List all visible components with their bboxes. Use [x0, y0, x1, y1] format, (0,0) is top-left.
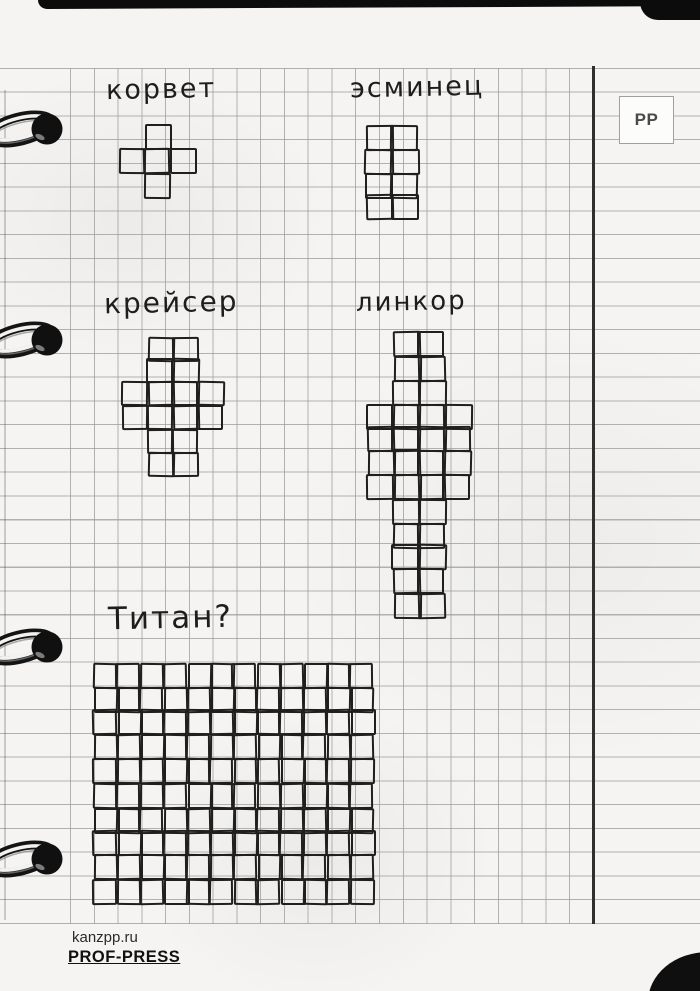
ship-cell [324, 758, 350, 784]
ship-cell [324, 879, 350, 905]
ship-cell [145, 124, 172, 150]
ship-cell [418, 355, 446, 381]
margin-rule-line [592, 66, 595, 924]
ship-cell [171, 381, 198, 406]
binder-ring-graphic [0, 616, 72, 676]
ship-cell [443, 425, 471, 451]
ship-cell [392, 380, 420, 406]
ship-cell [391, 544, 419, 570]
ship-label-kreyser: крейсер [104, 285, 239, 321]
ship-cell [198, 381, 226, 407]
ship-cell [418, 544, 446, 570]
ship-cell [390, 125, 418, 151]
notebook-page: PP корветэсминецкрейсерлинкорТитан? kanz… [0, 0, 700, 991]
notebook-top-edge-shadow [38, 0, 700, 9]
ship-cell [162, 662, 188, 689]
binder-ring-icon [0, 828, 72, 888]
ship-label-linkor: линкор [356, 286, 467, 318]
ship-cell [92, 829, 118, 856]
ship-cell [392, 149, 420, 175]
footer-brand: PROF-PRESS [68, 948, 180, 967]
ship-cell [196, 405, 223, 430]
ship-cell [92, 709, 118, 736]
ship-cell [418, 592, 446, 618]
ship-cell [278, 709, 304, 735]
ship-cell [351, 709, 376, 735]
ship-cell [392, 498, 420, 524]
ship-cell [115, 854, 141, 881]
ship-cell [208, 879, 234, 905]
ship-cell [231, 783, 257, 809]
binder-ring-graphic [0, 98, 72, 158]
page-left-edge-shadow [4, 90, 6, 920]
ship-cell [139, 758, 165, 785]
ship-cell [185, 854, 211, 880]
ship-cell [172, 452, 199, 477]
ship-cell [185, 734, 211, 760]
ship-cell [417, 568, 445, 594]
ship-cell [255, 758, 281, 785]
ship-cell [209, 709, 235, 736]
ship-cell [348, 783, 374, 809]
ship-cell [391, 194, 419, 220]
ship-cell [120, 381, 147, 406]
ship-cell [278, 662, 304, 689]
ship-cell [325, 709, 351, 736]
ship-cell [442, 474, 470, 500]
ship-cell [419, 498, 447, 524]
ship-cell [144, 173, 171, 199]
binder-ring-icon [0, 98, 72, 158]
ship-cell [417, 450, 445, 476]
binder-ring-icon [0, 616, 72, 676]
ship-cell [145, 405, 172, 430]
ship-cell [278, 783, 304, 810]
binder-ring-icon [0, 309, 72, 369]
ship-cell [232, 854, 258, 881]
ship-cell [255, 879, 281, 906]
ship-cell [161, 709, 187, 735]
ship-cell [301, 734, 327, 760]
ship-cell [363, 149, 392, 175]
footer-url: kanzpp.ru [72, 929, 138, 946]
ship-cell [350, 758, 376, 784]
ship-cell [366, 474, 394, 500]
ship-cell [417, 331, 445, 357]
ship-cell [115, 733, 141, 760]
ship-cell [231, 662, 257, 688]
ship-cell [91, 758, 117, 784]
ship-label-esminec: эсминец [350, 71, 485, 105]
ship-cell [325, 829, 351, 856]
ship-cell [350, 879, 376, 905]
brand-badge: PP [619, 96, 674, 144]
ship-cell [391, 426, 419, 452]
ship-cell [139, 879, 165, 906]
brand-badge-text: PP [635, 110, 659, 130]
ship-label-korvet: корвет [106, 73, 217, 106]
ship-cell [162, 783, 188, 810]
ship-cell [115, 783, 141, 809]
ship-cell [208, 758, 234, 784]
ship-cell [348, 662, 374, 688]
top-right-corner-shadow [640, 0, 700, 20]
ship-cell [419, 380, 447, 406]
ship-cell [142, 148, 170, 175]
ship-cell [170, 148, 197, 174]
ship-cell [146, 358, 173, 383]
binder-ring-graphic [0, 309, 72, 369]
ship-cell [348, 854, 374, 881]
ship-cell [170, 428, 197, 453]
ship-cell [351, 830, 376, 856]
ship-cell [161, 829, 187, 855]
ship-cell [209, 829, 235, 856]
ship-label-titan: Титан? [108, 599, 234, 638]
ship-cell [115, 662, 141, 688]
ship-cell [91, 879, 117, 905]
ship-cell [173, 358, 201, 384]
ship-cell [444, 450, 472, 476]
ship-cell [301, 854, 327, 880]
binder-ring-graphic [0, 828, 72, 888]
ship-cell [348, 733, 374, 760]
bottom-right-corner-shadow [648, 952, 700, 991]
ship-cell [232, 733, 258, 760]
ship-cell [278, 829, 304, 855]
